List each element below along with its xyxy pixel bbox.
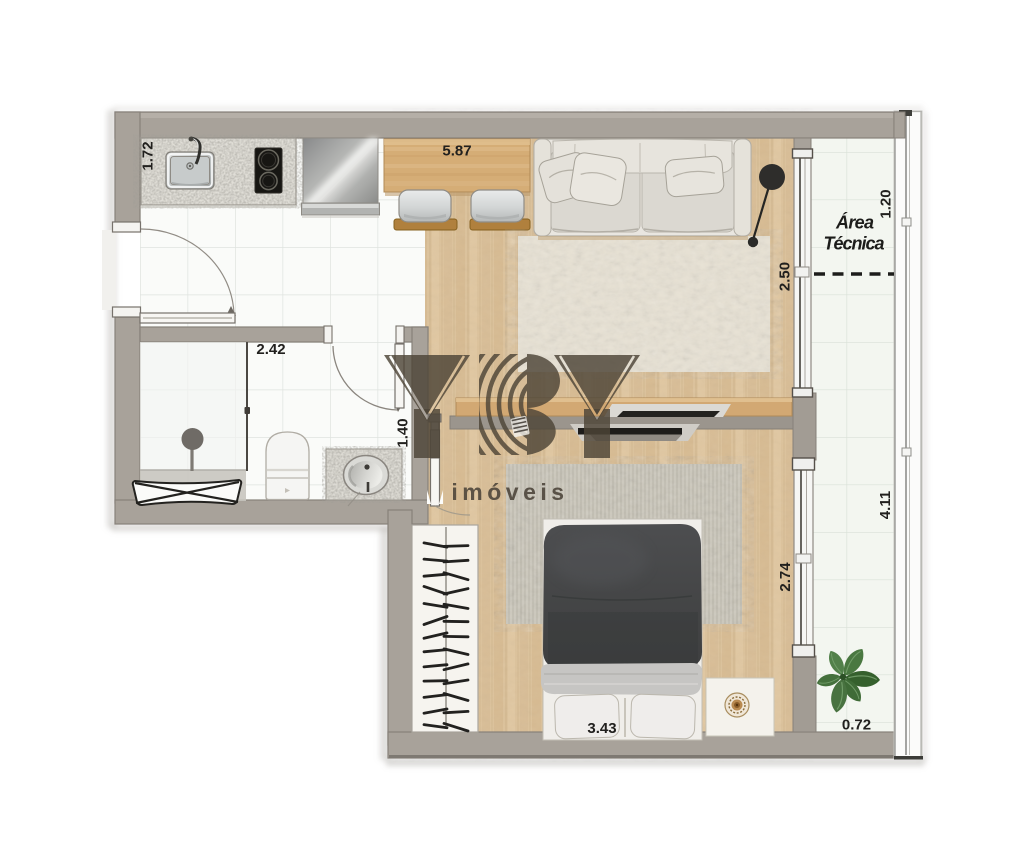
svg-text:1.20: 1.20 (878, 189, 895, 218)
svg-text:1.40: 1.40 (395, 418, 412, 447)
svg-text:1.72: 1.72 (140, 141, 157, 170)
svg-text:2.74: 2.74 (777, 562, 794, 592)
svg-text:3.43: 3.43 (587, 720, 616, 737)
svg-text:2.42: 2.42 (256, 341, 285, 358)
svg-text:2.50: 2.50 (777, 262, 794, 291)
svg-text:imóveis: imóveis (451, 479, 568, 505)
svg-text:5.87: 5.87 (442, 143, 471, 160)
svg-text:0.72: 0.72 (842, 717, 871, 734)
svg-text:4.11: 4.11 (877, 491, 894, 519)
svg-text:Técnica: Técnica (824, 234, 885, 254)
svg-text:Área: Área (835, 212, 874, 233)
